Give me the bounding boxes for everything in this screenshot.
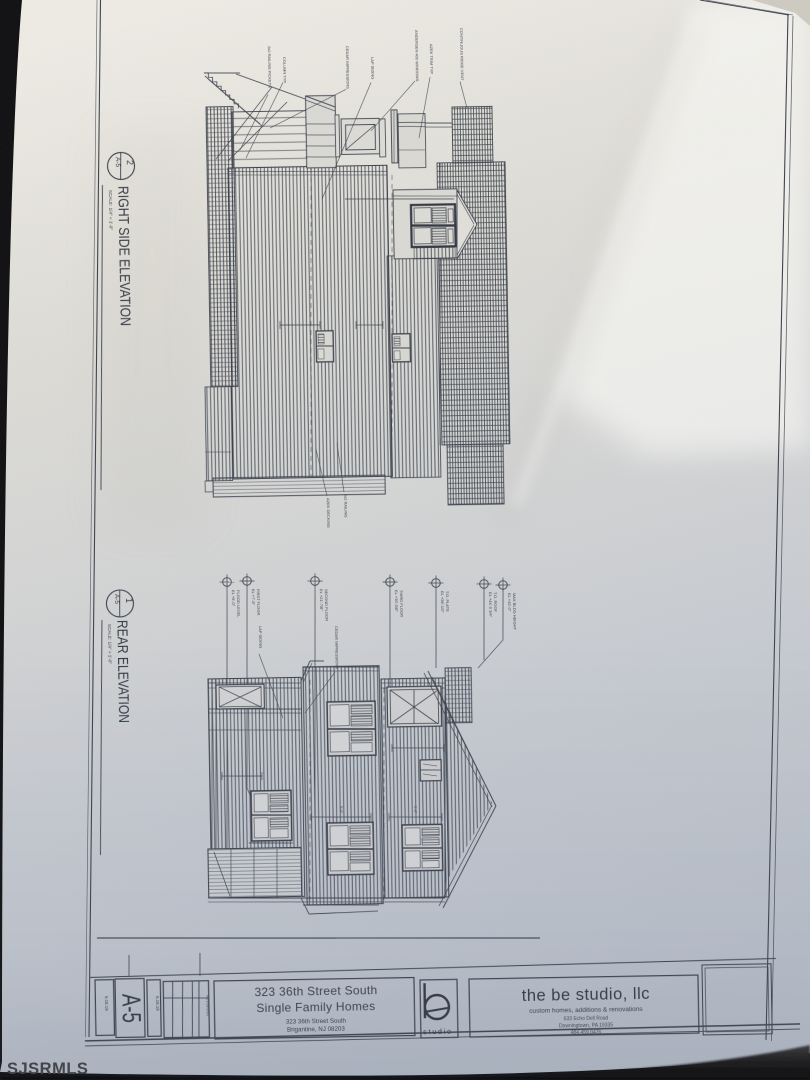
svg-text:SJSRMLS: SJSRMLS (7, 1060, 88, 1078)
